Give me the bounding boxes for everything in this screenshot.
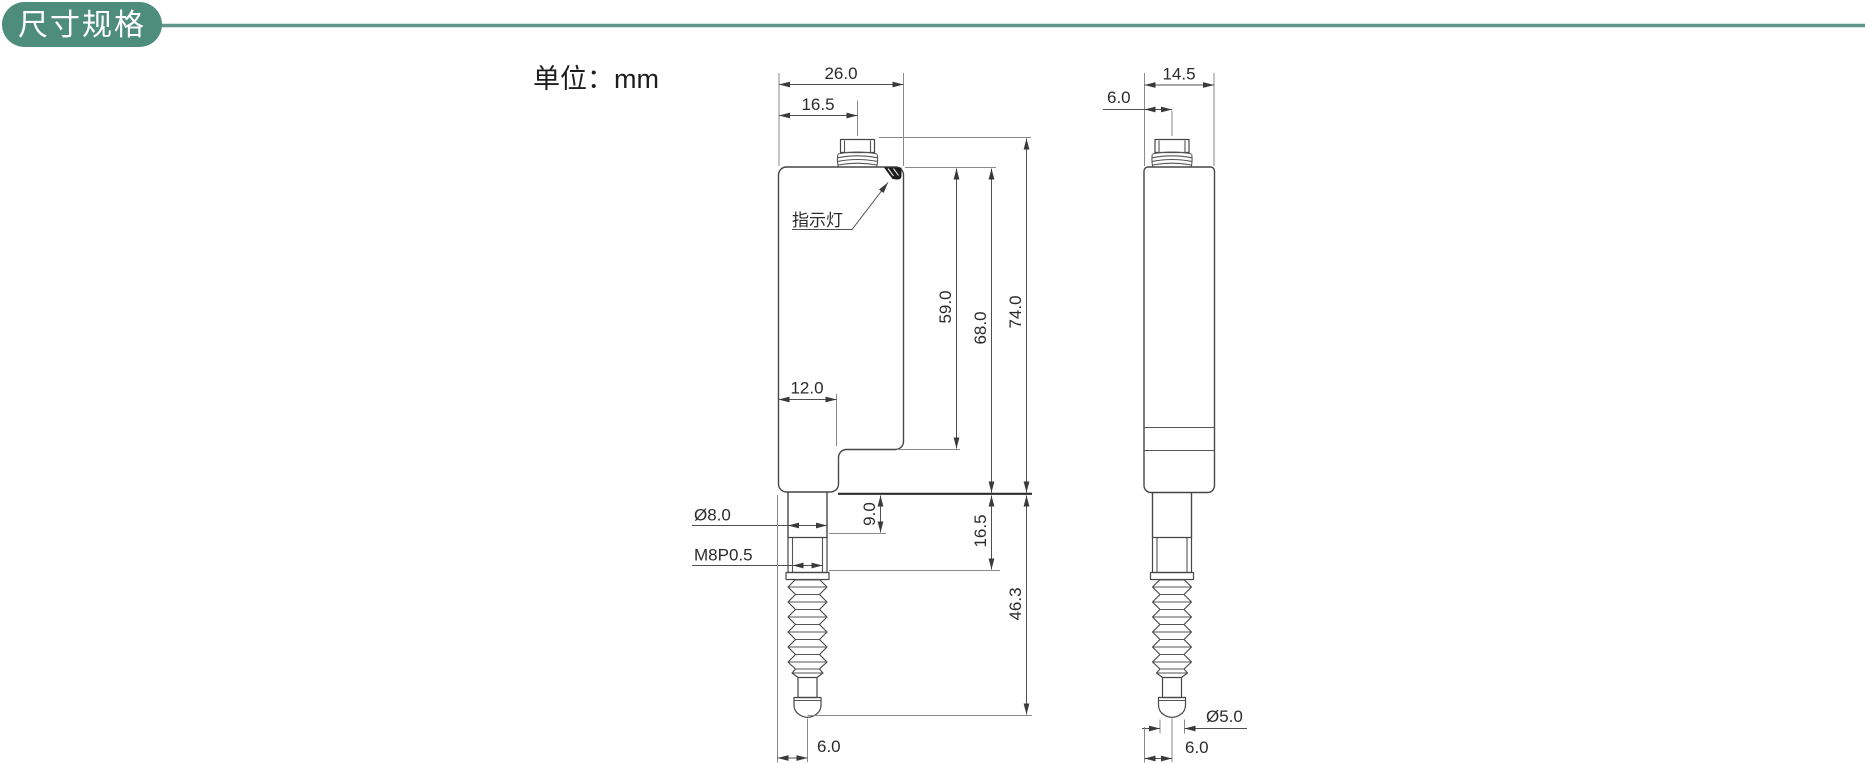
dim-overall-height: 74.0 [1006, 139, 1027, 493]
indicator-light [884, 168, 902, 180]
side-connector [1152, 140, 1192, 167]
dim-label-thread-spec: M8P0.5 [694, 546, 753, 565]
dim-label-column-width: 12.0 [790, 379, 823, 398]
page-title: 尺寸规格 [18, 9, 146, 42]
dimension-drawing: 尺寸规格 单位：mm 指示灯 26.0 [0, 0, 1865, 764]
dim-spindle-neck: 9.0 [860, 496, 881, 533]
dim-spindle-offset: 6.0 [778, 495, 841, 763]
dim-label-head-height: 59.0 [936, 290, 955, 323]
dim-thread-spec: M8P0.5 [692, 546, 823, 566]
front-view: 指示灯 26.0 16.5 59.0 [692, 64, 1032, 763]
dim-label-spindle-offset-side: 6.0 [1185, 738, 1209, 757]
side-body-outline [1144, 167, 1215, 493]
dim-label-overall-height: 74.0 [1006, 295, 1025, 328]
dim-spindle-diameter: Ø8.0 [692, 506, 827, 526]
dim-connector-offset-side: 6.0 [1103, 88, 1172, 136]
units-label: 单位：mm [533, 64, 659, 94]
dim-label-overall-depth: 14.5 [1162, 65, 1195, 84]
dim-spindle-offset-side: 6.0 [1145, 727, 1209, 763]
spec-sheet-page: 尺寸规格 单位：mm 指示灯 26.0 [0, 0, 1865, 764]
dim-label-connector-offset: 16.5 [801, 95, 834, 114]
indicator-light-wedge [884, 168, 902, 180]
front-spindle-assembly [786, 493, 829, 762]
dim-label-spindle-neck: 9.0 [860, 502, 879, 526]
title-bar: 尺寸规格 [2, 2, 1865, 47]
dim-label-spindle-diameter: Ø8.0 [694, 506, 731, 525]
dim-head-height: 59.0 [936, 169, 957, 449]
side-spindle-assembly [1151, 493, 1194, 762]
dim-thread-distance: 16.5 [971, 496, 992, 570]
dim-label-overall-width: 26.0 [824, 64, 857, 83]
indicator-callout: 指示灯 [792, 183, 888, 231]
dim-label-body-height: 68.0 [971, 311, 990, 344]
dim-label-travel-length: 46.3 [1006, 587, 1025, 620]
dim-label-spindle-offset: 6.0 [817, 737, 841, 756]
dim-connector-offset: 16.5 [779, 95, 858, 136]
dim-body-height: 68.0 [971, 169, 992, 493]
front-connector [837, 140, 877, 167]
dim-label-tip-diameter: Ø5.0 [1206, 707, 1243, 726]
dim-label-thread-distance: 16.5 [971, 514, 990, 547]
dim-label-connector-offset-side: 6.0 [1107, 88, 1131, 107]
indicator-label: 指示灯 [792, 211, 843, 230]
dim-travel-length: 46.3 [1006, 496, 1027, 715]
dim-column-width: 12.0 [779, 379, 837, 447]
side-view: 14.5 6.0 Ø5.0 6.0 [1103, 65, 1247, 763]
dim-tip-diameter: Ø5.0 [1142, 707, 1247, 734]
side-body-seam-lines [1144, 428, 1215, 451]
